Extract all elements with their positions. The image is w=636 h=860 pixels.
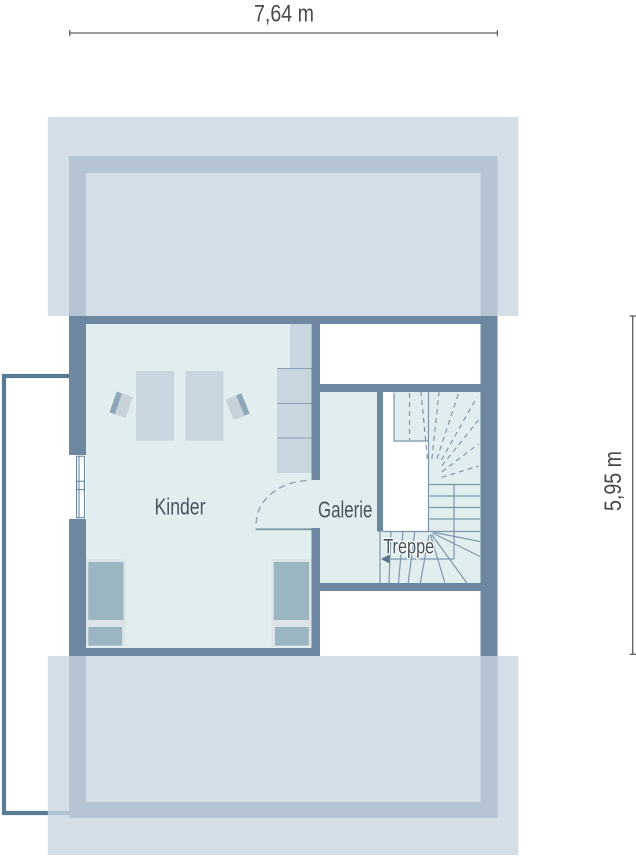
svg-text:Treppe: Treppe (383, 536, 434, 559)
svg-text:5,95 m: 5,95 m (600, 451, 627, 511)
svg-text:Kinder: Kinder (155, 494, 206, 520)
svg-text:Galerie: Galerie (318, 497, 373, 523)
svg-text:7,64 m: 7,64 m (254, 0, 314, 27)
